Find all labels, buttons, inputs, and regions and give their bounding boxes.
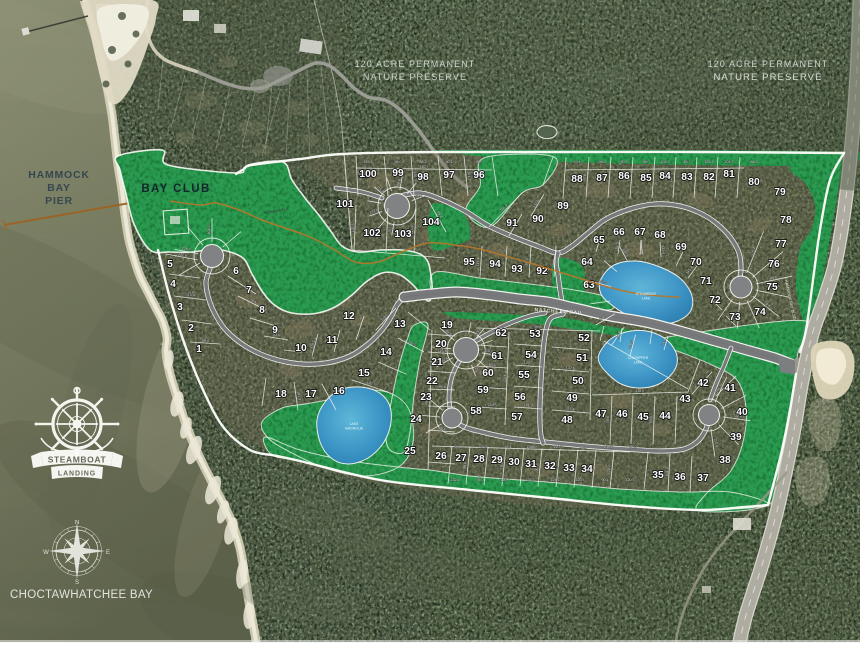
svg-text:24: 24 xyxy=(410,414,422,425)
svg-text:79.4: 79.4 xyxy=(503,374,507,381)
svg-text:39: 39 xyxy=(730,432,742,443)
svg-text:77: 77 xyxy=(775,239,787,250)
svg-text:95.0: 95.0 xyxy=(630,445,637,449)
svg-text:29: 29 xyxy=(491,455,503,466)
svg-text:72: 72 xyxy=(709,295,721,306)
svg-text:100: 100 xyxy=(359,169,376,180)
svg-text:36: 36 xyxy=(674,472,686,483)
svg-text:BAY CLUB: BAY CLUB xyxy=(141,183,210,195)
svg-text:11: 11 xyxy=(327,335,338,346)
svg-text:79: 79 xyxy=(774,187,786,198)
svg-text:103: 103 xyxy=(394,229,411,240)
svg-text:90.1: 90.1 xyxy=(602,478,609,482)
svg-text:95.0: 95.0 xyxy=(530,445,537,449)
svg-text:84: 84 xyxy=(659,171,671,182)
svg-text:85: 85 xyxy=(640,173,652,184)
svg-text:125.1: 125.1 xyxy=(705,160,714,164)
svg-text:101.3: 101.3 xyxy=(661,160,670,164)
svg-text:13: 13 xyxy=(394,319,406,330)
svg-text:90: 90 xyxy=(532,214,544,225)
svg-text:51: 51 xyxy=(576,353,588,364)
svg-text:57: 57 xyxy=(511,412,523,423)
svg-text:E: E xyxy=(106,550,110,556)
svg-text:90.1: 90.1 xyxy=(621,160,628,164)
svg-text:15: 15 xyxy=(358,368,370,379)
svg-text:110.5: 110.5 xyxy=(635,389,644,393)
svg-text:59: 59 xyxy=(477,385,489,396)
svg-text:HAMMOCK: HAMMOCK xyxy=(28,169,90,181)
svg-text:NATURE PRESERVE: NATURE PRESERVE xyxy=(713,72,822,83)
svg-text:28: 28 xyxy=(473,454,485,465)
svg-text:30: 30 xyxy=(508,457,520,468)
svg-text:62: 62 xyxy=(495,328,507,339)
svg-text:95: 95 xyxy=(463,257,475,268)
svg-text:43: 43 xyxy=(679,394,691,405)
svg-text:W: W xyxy=(43,550,49,556)
svg-text:88: 88 xyxy=(571,174,583,185)
svg-text:115.4: 115.4 xyxy=(566,407,575,412)
svg-text:STEAMBOAT: STEAMBOAT xyxy=(636,292,657,296)
svg-text:S: S xyxy=(75,580,79,586)
svg-text:66: 66 xyxy=(613,227,625,238)
svg-text:MAGNOLIA: MAGNOLIA xyxy=(345,427,364,431)
svg-text:120.7: 120.7 xyxy=(420,165,429,169)
svg-text:LAKE: LAKE xyxy=(350,422,359,426)
svg-text:79.4: 79.4 xyxy=(439,427,446,431)
svg-text:CULPEPPER: CULPEPPER xyxy=(628,356,649,360)
svg-text:120.7: 120.7 xyxy=(524,361,533,366)
svg-text:102: 102 xyxy=(363,228,380,239)
svg-text:68: 68 xyxy=(654,230,666,241)
svg-text:132.6: 132.6 xyxy=(566,366,575,371)
svg-text:101.3: 101.3 xyxy=(207,226,211,235)
svg-text:95.0: 95.0 xyxy=(599,160,606,164)
svg-text:96: 96 xyxy=(473,170,485,181)
svg-text:40: 40 xyxy=(736,407,748,418)
svg-text:64: 64 xyxy=(581,257,593,268)
svg-text:82: 82 xyxy=(703,172,715,183)
svg-text:7: 7 xyxy=(246,285,252,296)
svg-text:101.3: 101.3 xyxy=(725,160,734,164)
svg-text:37: 37 xyxy=(697,473,709,484)
svg-text:45: 45 xyxy=(637,412,649,423)
svg-text:LAKE: LAKE xyxy=(642,297,651,301)
svg-text:35: 35 xyxy=(652,470,664,481)
svg-text:NATURE PRESERVE: NATURE PRESERVE xyxy=(363,72,467,82)
svg-text:95.0: 95.0 xyxy=(477,478,484,482)
svg-text:104: 104 xyxy=(422,217,439,228)
svg-text:78: 78 xyxy=(780,215,792,226)
svg-text:97: 97 xyxy=(443,170,455,181)
svg-text:49: 49 xyxy=(566,393,578,404)
svg-text:87: 87 xyxy=(596,173,608,184)
svg-text:88.2: 88.2 xyxy=(420,160,427,164)
svg-text:31: 31 xyxy=(525,459,537,470)
svg-text:48: 48 xyxy=(561,415,573,426)
svg-text:8: 8 xyxy=(259,305,265,316)
svg-text:120.7: 120.7 xyxy=(501,478,510,482)
svg-text:86: 86 xyxy=(618,171,630,182)
svg-text:14: 14 xyxy=(380,347,392,358)
svg-text:50: 50 xyxy=(572,376,584,387)
svg-text:18: 18 xyxy=(275,389,287,400)
svg-text:2: 2 xyxy=(188,323,194,334)
svg-text:80: 80 xyxy=(748,177,760,188)
svg-text:34: 34 xyxy=(581,464,593,475)
svg-text:91: 91 xyxy=(506,218,518,229)
svg-text:STEAMBOAT: STEAMBOAT xyxy=(48,455,107,465)
svg-text:120.7: 120.7 xyxy=(554,445,563,449)
svg-text:125.1: 125.1 xyxy=(551,478,560,482)
svg-text:41: 41 xyxy=(724,383,736,394)
svg-text:125.1: 125.1 xyxy=(364,160,373,164)
svg-text:44: 44 xyxy=(659,411,671,422)
svg-text:71: 71 xyxy=(700,276,712,287)
svg-text:95.0: 95.0 xyxy=(643,160,650,164)
svg-text:26: 26 xyxy=(435,451,447,462)
svg-text:69: 69 xyxy=(675,242,687,253)
svg-text:1: 1 xyxy=(196,344,202,355)
svg-text:90.1: 90.1 xyxy=(446,160,453,164)
svg-text:10: 10 xyxy=(295,343,307,354)
svg-text:65: 65 xyxy=(593,235,605,246)
svg-text:88.2: 88.2 xyxy=(751,160,758,164)
svg-text:81: 81 xyxy=(723,169,735,180)
svg-text:93: 93 xyxy=(511,264,523,275)
svg-text:75: 75 xyxy=(766,282,778,293)
svg-text:101.3: 101.3 xyxy=(479,445,488,449)
svg-text:79.4: 79.4 xyxy=(505,445,512,449)
svg-text:110.5: 110.5 xyxy=(488,403,497,408)
svg-text:60: 60 xyxy=(482,368,494,379)
svg-text:120 ACRE PERMANENT: 120 ACRE PERMANENT xyxy=(708,59,829,69)
svg-text:22: 22 xyxy=(426,376,438,387)
svg-text:12: 12 xyxy=(343,311,355,322)
svg-text:101.3: 101.3 xyxy=(665,467,669,476)
svg-text:42: 42 xyxy=(697,378,709,389)
svg-text:46: 46 xyxy=(616,409,628,420)
svg-text:79.4: 79.4 xyxy=(583,174,587,181)
svg-text:101.3: 101.3 xyxy=(524,403,533,408)
svg-text:101: 101 xyxy=(336,199,353,210)
svg-text:99: 99 xyxy=(392,168,404,179)
svg-text:120.7: 120.7 xyxy=(626,478,635,482)
svg-text:93.6: 93.6 xyxy=(489,363,496,367)
svg-text:99.8: 99.8 xyxy=(439,385,446,389)
svg-text:76: 76 xyxy=(768,259,780,270)
svg-text:58: 58 xyxy=(470,406,482,417)
svg-text:53: 53 xyxy=(529,329,541,340)
svg-text:19: 19 xyxy=(441,320,453,331)
svg-text:27: 27 xyxy=(455,453,467,464)
svg-text:89: 89 xyxy=(557,201,569,212)
svg-text:70: 70 xyxy=(690,257,702,268)
svg-text:83: 83 xyxy=(681,172,693,183)
svg-text:115.4: 115.4 xyxy=(476,257,481,266)
svg-text:23: 23 xyxy=(420,392,432,403)
svg-text:132.6: 132.6 xyxy=(661,245,666,254)
svg-text:25: 25 xyxy=(404,446,416,457)
svg-text:3: 3 xyxy=(177,302,183,313)
svg-text:79.4: 79.4 xyxy=(574,160,581,164)
svg-text:CHOCTAWHATCHEE BAY: CHOCTAWHATCHEE BAY xyxy=(10,589,153,601)
svg-text:95.0: 95.0 xyxy=(395,160,402,164)
svg-text:56: 56 xyxy=(514,392,526,403)
svg-text:94: 94 xyxy=(489,259,501,270)
svg-text:120 ACRE PERMANENT: 120 ACRE PERMANENT xyxy=(355,59,476,69)
svg-text:98: 98 xyxy=(417,172,429,183)
svg-text:125.1: 125.1 xyxy=(526,478,535,482)
svg-text:93.6: 93.6 xyxy=(649,416,653,423)
svg-text:85.7: 85.7 xyxy=(684,160,691,164)
svg-text:67: 67 xyxy=(634,227,646,238)
svg-text:9: 9 xyxy=(272,325,278,336)
svg-text:4: 4 xyxy=(170,279,176,290)
svg-text:52: 52 xyxy=(578,333,590,344)
svg-text:47: 47 xyxy=(595,409,607,420)
svg-text:33: 33 xyxy=(563,463,575,474)
svg-text:PIER: PIER xyxy=(45,195,73,207)
svg-text:32: 32 xyxy=(544,461,556,472)
svg-text:16: 16 xyxy=(333,386,345,397)
svg-text:38: 38 xyxy=(719,455,731,466)
svg-text:74: 74 xyxy=(754,307,766,318)
svg-text:21: 21 xyxy=(431,357,443,368)
svg-text:132.6: 132.6 xyxy=(451,478,460,482)
svg-text:120.7: 120.7 xyxy=(576,478,585,482)
svg-text:17: 17 xyxy=(305,389,317,400)
svg-text:88.2: 88.2 xyxy=(580,445,587,449)
svg-text:99.8: 99.8 xyxy=(202,339,209,343)
svg-text:99.8: 99.8 xyxy=(455,445,462,449)
svg-text:BAY: BAY xyxy=(47,182,71,194)
svg-text:132.6: 132.6 xyxy=(351,223,355,232)
svg-text:61: 61 xyxy=(491,351,503,362)
svg-text:LAKE: LAKE xyxy=(634,361,643,365)
svg-text:N: N xyxy=(75,520,79,526)
svg-text:54: 54 xyxy=(525,350,537,361)
svg-text:5: 5 xyxy=(167,259,173,270)
svg-text:73: 73 xyxy=(729,312,741,323)
svg-text:20: 20 xyxy=(435,339,447,350)
svg-text:95.0: 95.0 xyxy=(476,160,483,164)
svg-text:LANDING: LANDING xyxy=(58,471,96,478)
svg-text:55: 55 xyxy=(518,370,530,381)
svg-text:108.2: 108.2 xyxy=(604,445,613,449)
svg-text:6: 6 xyxy=(233,266,239,277)
